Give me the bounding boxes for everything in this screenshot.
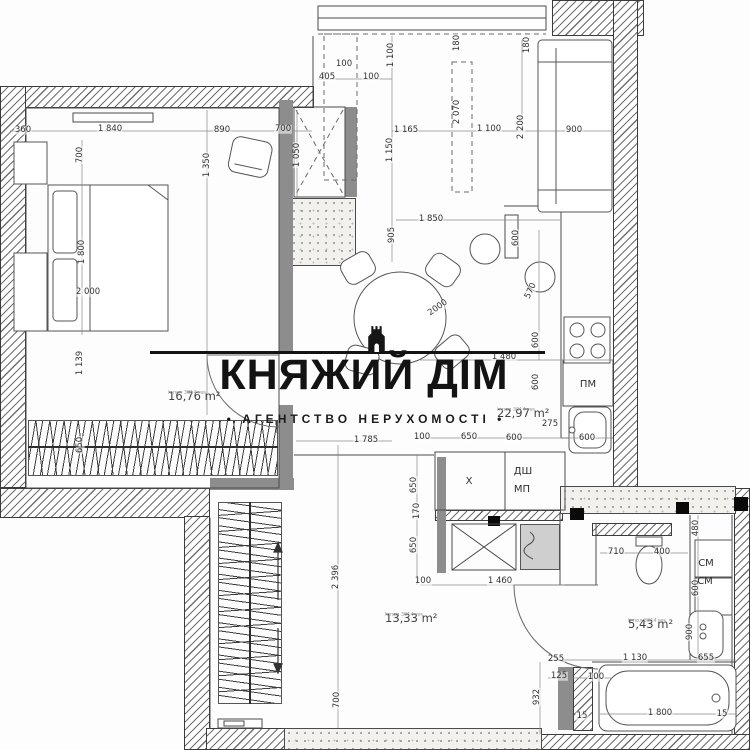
dim-label: 905 [388, 226, 397, 244]
dim-label: 2 396 [332, 564, 341, 590]
dim-label: 180 [453, 34, 462, 52]
dim-label: 600 [532, 331, 541, 349]
watermark-title: КНЯЖИЙ ДІМ [219, 352, 508, 399]
dim-label: 2 000 [75, 288, 101, 297]
dim-label: 710 [607, 548, 625, 557]
dim-label: 405 [318, 73, 336, 82]
fixture-label-duct-dsh: ДШ [514, 467, 533, 477]
fixture-label-washer: СМ [698, 559, 714, 569]
watermark-subtitle: • АГЕНТСТВО НЕРУХОМОСТІ • [227, 412, 506, 426]
dim-label: 100 [587, 673, 605, 682]
dim-label: 100 [335, 60, 353, 69]
dim-label: 600 [505, 434, 523, 443]
dim-label: 900 [565, 126, 583, 135]
dim-label: 1 139 [76, 350, 85, 376]
dim-label: 1 165 [393, 126, 419, 135]
dim-label: 1 785 [353, 436, 379, 445]
dim-label: 15 [716, 710, 729, 719]
dim-label: 1 460 [487, 577, 513, 586]
dim-label: 1 850 [418, 215, 444, 224]
room-note: h пол 3014 мм [385, 612, 423, 618]
fixture-label-duct-mp: МП [514, 485, 530, 495]
dim-label: 360 [14, 126, 32, 135]
dim-label: 655 [697, 654, 715, 663]
dim-label: 700 [274, 125, 292, 134]
room-note: h пол 3014 мм [628, 618, 666, 624]
dim-label: 650 [410, 536, 419, 554]
dim-label: 170 [413, 502, 422, 520]
dim-label: 100 [362, 73, 380, 82]
dim-label: 125 [550, 672, 568, 681]
dim-label: 1 800 [78, 239, 87, 265]
dim-label: 2 070 [453, 99, 462, 125]
dim-label: 180 [523, 36, 532, 54]
castle-icon [364, 321, 389, 352]
dim-label: 1 350 [203, 152, 212, 178]
dim-label: 650 [76, 436, 85, 454]
dim-label: 1 840 [97, 125, 123, 134]
dim-label: 100 [414, 577, 432, 586]
fixture-label-dishwasher: ПМ [580, 380, 596, 390]
dim-label: 1 150 [386, 137, 395, 163]
dim-label: 1 130 [622, 654, 648, 663]
dim-label: 600 [512, 229, 521, 247]
dim-label: 650 [460, 433, 478, 442]
dim-label: 1 100 [387, 42, 396, 68]
dim-label: 1 050 [293, 142, 302, 168]
dim-label: 700 [333, 691, 342, 709]
dim-label: 932 [533, 688, 542, 706]
fixture-label-dryer: СМ [697, 577, 713, 587]
dim-label: 1 800 [647, 709, 673, 718]
dim-label: 275 [541, 420, 559, 429]
room-note: h пол 3014 мм [168, 390, 206, 396]
dim-label: 700 [76, 146, 85, 164]
dim-label: 600 [532, 373, 541, 391]
dim-label: 900 [686, 623, 695, 641]
dim-label: 570 [523, 281, 538, 301]
dim-label: 400 [653, 548, 671, 557]
dim-label: 2 200 [517, 114, 526, 140]
dim-label: 650 [410, 476, 419, 494]
dim-label: 2000 [426, 298, 450, 319]
dim-label: 100 [413, 433, 431, 442]
floor-plan: 3601 8408907007001 3501 0501 8002 0001 1… [0, 0, 750, 750]
dim-label: 255 [547, 655, 565, 664]
dim-label: 15 [576, 712, 589, 721]
dim-label: 1 100 [476, 125, 502, 134]
dim-label: 600 [578, 434, 596, 443]
dim-label: 480 [692, 519, 701, 537]
fixture-label-closet-x: X [466, 477, 473, 487]
dim-label: 890 [213, 126, 231, 135]
